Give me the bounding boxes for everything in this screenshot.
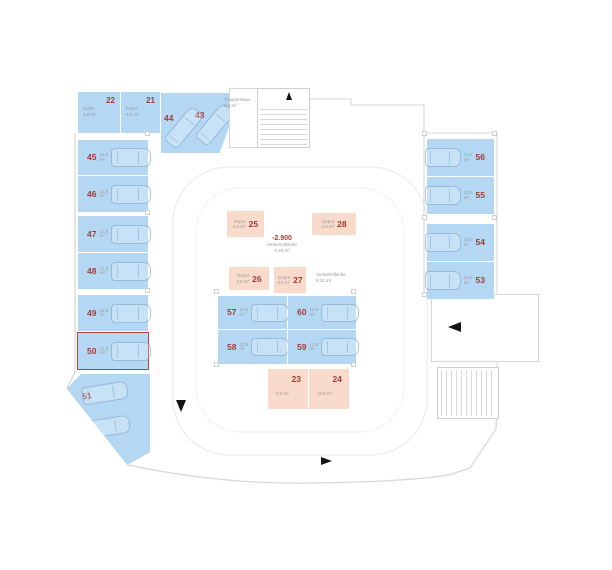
space-area: 12.5 m²: [309, 343, 318, 352]
left-arrow-icon: [448, 322, 461, 332]
parking-space-56[interactable]: 56 12.5 m²: [427, 139, 494, 176]
level-elevation: -2.900: [254, 235, 310, 242]
grid-tick: [492, 215, 497, 220]
space-area: 12.5 m²: [464, 276, 473, 285]
space-area: 12.5 m²: [99, 309, 108, 318]
stair-steps: [441, 370, 495, 416]
depot-room-25[interactable]: Depot4.0 m² 25: [227, 211, 264, 237]
car-outline: [111, 304, 151, 323]
parking-space-53[interactable]: 53 12.5 m²: [427, 262, 494, 299]
depot-room-23[interactable]: 23 8.0 m²: [268, 369, 308, 409]
space-number: 24: [333, 374, 342, 384]
up-arrow-icon: [286, 92, 292, 100]
parking-space-45[interactable]: 45 12.5 m²: [78, 140, 148, 175]
parking-space-51[interactable]: 51: [81, 381, 129, 406]
parking-space-47[interactable]: 47 12.5 m²: [78, 216, 148, 252]
space-number: 52: [84, 424, 95, 435]
depot-room-28[interactable]: Depot3.5 m² 28: [312, 213, 356, 235]
room-label: Depot3.9 m²: [236, 273, 249, 284]
staircase-top: [257, 88, 310, 148]
level-annotation: -2.900 Verkehrsfläche5.28 m²: [254, 235, 310, 254]
grid-tick: [492, 131, 497, 136]
space-number: 21: [146, 96, 155, 105]
space-area: 12.5 m²: [99, 190, 108, 199]
space-area: 12.5 m²: [464, 153, 473, 162]
space-number: 49: [87, 309, 96, 318]
space-area: 12.5 m²: [309, 308, 318, 317]
car-outline: [111, 185, 151, 204]
grid-tick: [145, 288, 150, 293]
stair-steps: [260, 109, 307, 145]
room-label: Depot4.0 m²: [233, 219, 246, 230]
car-outline: [251, 304, 289, 322]
car-outline: [111, 148, 151, 167]
grid-tick: [145, 131, 150, 136]
grid-tick: [422, 292, 427, 297]
parking-space-46[interactable]: 46 12.5 m²: [78, 176, 148, 212]
parking-space-54[interactable]: 54 12.5 m²: [427, 224, 494, 261]
space-number: 55: [476, 191, 485, 200]
space-number: 28: [337, 219, 346, 229]
space-number: 23: [292, 374, 301, 384]
space-number: 58: [227, 343, 236, 352]
space-number: 54: [476, 238, 485, 247]
floor-plan-canvas: 22 Keller5.8 m² 21 Keller5.6 m² 44 43 45…: [0, 0, 612, 570]
space-area: 12.5 m²: [99, 347, 108, 356]
car-outline: [425, 148, 461, 167]
space-number: 47: [87, 230, 96, 239]
parking-block-44-43[interactable]: 44 43: [161, 93, 229, 153]
grid-tick: [214, 362, 219, 367]
space-number: 25: [249, 219, 258, 229]
car-outline: [425, 233, 461, 252]
space-area: 8.0 m²: [276, 391, 289, 396]
boundary-wall-top: [310, 99, 424, 133]
car-outline: [81, 381, 129, 406]
depot-room-27[interactable]: Depot3.6 m² 27: [274, 267, 306, 293]
car-outline: [111, 262, 151, 281]
car-outline: [425, 186, 461, 205]
space-number: 56: [476, 153, 485, 162]
space-area: 12.5 m²: [99, 153, 108, 162]
right-arrow-icon: [321, 457, 332, 465]
parking-space-49[interactable]: 49 12.5 m²: [78, 295, 148, 331]
grid-tick: [422, 215, 427, 220]
space-number: 60: [297, 308, 306, 317]
storage-room-21[interactable]: 21 Keller5.6 m²: [121, 92, 160, 133]
space-number: 26: [252, 274, 261, 284]
car-outline: [321, 304, 359, 322]
space-number: 46: [87, 190, 96, 199]
car-outline: [251, 338, 289, 356]
down-arrow-icon: [176, 400, 186, 412]
depot-room-26[interactable]: Depot3.9 m² 26: [229, 267, 269, 290]
parking-space-57[interactable]: 57 12.5 m²: [218, 296, 287, 329]
space-area: 10.5 m²: [317, 391, 332, 396]
room-label: Depot3.5 m²: [321, 219, 334, 230]
grid-tick: [351, 289, 356, 294]
car-outline: [425, 271, 461, 290]
traffic-area-label: Verkehrsfläche8.31 m²: [316, 272, 358, 284]
parking-block-51-52[interactable]: 51 52: [66, 374, 150, 465]
room-label: Depot3.6 m²: [277, 275, 290, 286]
parking-space-58[interactable]: 58 12.5 m²: [218, 330, 287, 364]
car-outline: [111, 225, 151, 244]
grid-tick: [145, 210, 150, 215]
space-area: 12.5 m²: [464, 238, 473, 247]
parking-space-59[interactable]: 59 12.5 m²: [288, 330, 356, 364]
space-number: 53: [476, 276, 485, 285]
space-area: 12.5 m²: [464, 191, 473, 200]
space-number: 44: [164, 113, 173, 123]
space-number: 50: [87, 347, 96, 356]
grid-tick: [214, 289, 219, 294]
level-area-label: Verkehrsfläche5.28 m²: [254, 242, 310, 254]
room-label: Keller5.8 m²: [83, 106, 96, 117]
car-outline: [321, 338, 359, 356]
room-label: Keller5.6 m²: [126, 106, 139, 117]
parking-space-55[interactable]: 55 12.5 m²: [427, 177, 494, 214]
parking-space-48[interactable]: 48 12.5 m²: [78, 253, 148, 289]
space-area: 12.5 m²: [99, 267, 108, 276]
depot-room-24[interactable]: 24 10.5 m²: [309, 369, 349, 409]
grid-tick: [351, 362, 356, 367]
car-outline: [83, 415, 131, 440]
space-area: 12.5 m²: [239, 343, 248, 352]
space-number: 45: [87, 153, 96, 162]
space-area: 12.5 m²: [99, 230, 108, 239]
space-number: 27: [293, 275, 302, 285]
space-area: 12.5 m²: [239, 308, 248, 317]
space-number: 59: [297, 343, 306, 352]
parking-space-52[interactable]: 52: [83, 415, 131, 440]
parking-space-60[interactable]: 60 12.5 m²: [288, 296, 356, 329]
stairwell-label: Treppenhaus6.0 m²: [224, 97, 256, 109]
storage-room-22[interactable]: 22 Keller5.8 m²: [78, 92, 120, 133]
grid-tick: [422, 131, 427, 136]
staircase-bottom-right: [437, 367, 499, 419]
space-number: 48: [87, 267, 96, 276]
car-outline: [163, 105, 204, 150]
space-number: 22: [106, 96, 115, 105]
space-number: 57: [227, 308, 236, 317]
parking-space-50-selected[interactable]: 50 12.5 m²: [77, 332, 149, 370]
car-outline: [111, 342, 151, 361]
